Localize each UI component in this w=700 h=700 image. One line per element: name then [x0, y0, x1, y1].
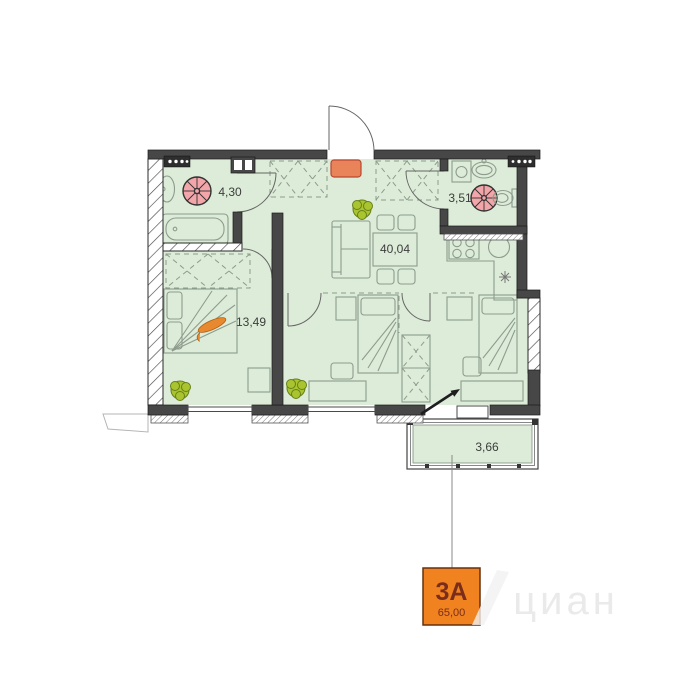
windows: [188, 405, 488, 418]
balcony-door-sill: [457, 406, 488, 418]
bedroom-area-label: 13,49: [236, 315, 266, 329]
entrance-rug: [331, 160, 361, 177]
living-area-label: 40,04: [380, 242, 410, 256]
window: [308, 405, 375, 414]
balcony-area-label: 3,66: [475, 440, 499, 454]
unit-label: 3А: [436, 578, 468, 606]
svg-text:циан: циан: [513, 579, 619, 623]
floor-plan: 3,66 4,30: [0, 0, 700, 700]
entrance-door: [329, 106, 374, 151]
neighbor-outline: [103, 414, 148, 432]
party-wall-left: [148, 159, 163, 405]
unit-badge: 3А 65,00: [423, 568, 480, 625]
extractor-fan-icon: [183, 177, 211, 205]
window: [188, 405, 252, 414]
unit-total-area: 65,00: [438, 607, 466, 619]
balcony: 3,66: [407, 419, 538, 469]
floor-plan-page: 3,66 4,30: [0, 0, 700, 700]
wc-area-label: 3,51: [448, 191, 472, 205]
bathroom-area-label: 4,30: [218, 185, 242, 199]
watermark: циан: [472, 570, 619, 625]
facade-ledges: [103, 414, 423, 432]
